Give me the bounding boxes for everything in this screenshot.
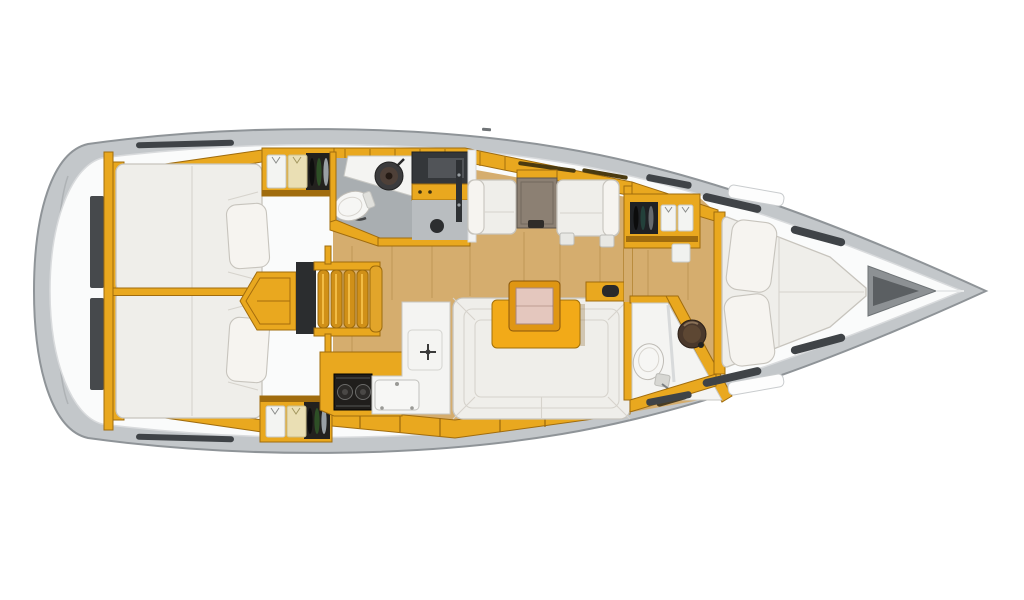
mast-mark: [482, 128, 491, 132]
yacht-floor-plan-svg: [0, 0, 1024, 600]
wardrobe-aft-port: [262, 148, 334, 196]
stove-icon: [334, 374, 372, 410]
head-door-cabinet: [586, 282, 624, 301]
boat-floor-plan: [0, 0, 1024, 600]
shower-console: [412, 150, 476, 242]
aft-cabin-port: [113, 150, 270, 292]
steps-icon: [318, 266, 382, 332]
